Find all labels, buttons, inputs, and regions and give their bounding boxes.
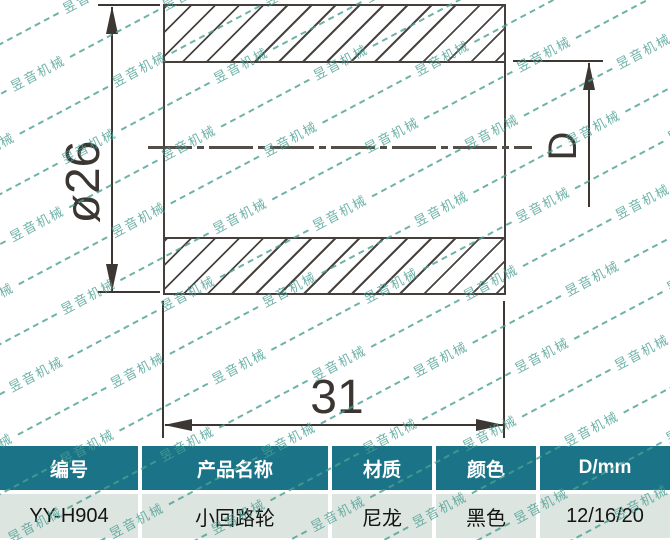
cell-material: 尼龙 xyxy=(332,494,432,538)
header-cell-product-name: 产品名称 xyxy=(142,446,328,490)
length-dim-line xyxy=(165,424,505,426)
table-header-row: 编号 产品名称 材质 颜色 D/mm xyxy=(0,446,670,490)
bottom-hatch-section xyxy=(165,239,504,293)
header-cell-material: 材质 xyxy=(332,446,432,490)
arrow-down-icon xyxy=(106,264,118,292)
cell-product-name: 小回路轮 xyxy=(142,494,328,538)
cell-d-mm: 12/16/20 xyxy=(540,494,670,538)
cell-color: 黑色 xyxy=(436,494,536,538)
arrow-left-icon xyxy=(164,419,192,431)
length-label: 31 xyxy=(310,374,363,422)
header-cell-d-mm: D/mm xyxy=(540,446,670,490)
spec-table: 编号 产品名称 材质 颜色 D/mm YY-H904 小回路轮 尼龙 黑色 12… xyxy=(0,446,670,538)
bore-top-edge xyxy=(165,61,504,63)
length-ext-line-left xyxy=(162,301,164,438)
cell-number: YY-H904 xyxy=(0,494,138,538)
header-cell-number: 编号 xyxy=(0,446,138,490)
diameter-dim-line xyxy=(111,7,113,293)
header-cell-color: 颜色 xyxy=(436,446,536,490)
length-ext-line-right xyxy=(503,301,505,438)
bore-diameter-label: D xyxy=(543,132,583,161)
table-data-row: YY-H904 小回路轮 尼龙 黑色 12/16/20 xyxy=(0,494,670,538)
top-hatch-section xyxy=(165,6,504,61)
page: ø26 31 D 编号 产品名称 材质 颜色 D/mm YY-H904 小回路轮… xyxy=(0,0,670,540)
outer-diameter-label: ø26 xyxy=(60,141,108,224)
arrow-up-icon xyxy=(106,6,118,34)
arrow-up-icon xyxy=(583,62,595,90)
bore-bottom-edge xyxy=(165,237,504,239)
arrow-right-icon xyxy=(476,419,504,431)
centerline xyxy=(148,146,532,149)
technical-drawing: ø26 31 D xyxy=(0,0,670,446)
